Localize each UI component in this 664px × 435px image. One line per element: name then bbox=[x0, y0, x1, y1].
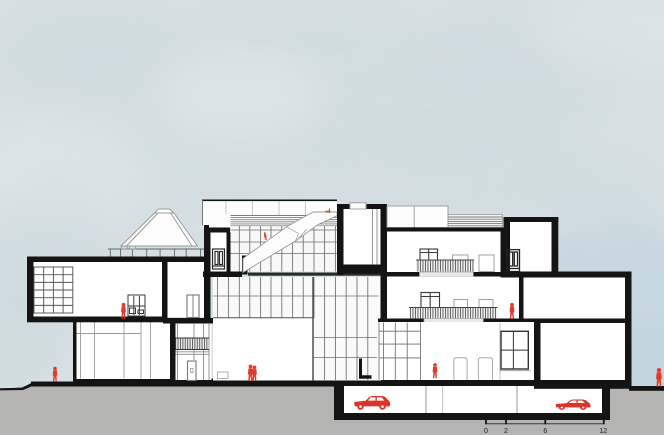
svg-text:6: 6 bbox=[543, 428, 547, 435]
svg-text:12: 12 bbox=[599, 428, 607, 435]
svg-text:2: 2 bbox=[504, 428, 508, 435]
svg-text:0: 0 bbox=[484, 428, 488, 435]
